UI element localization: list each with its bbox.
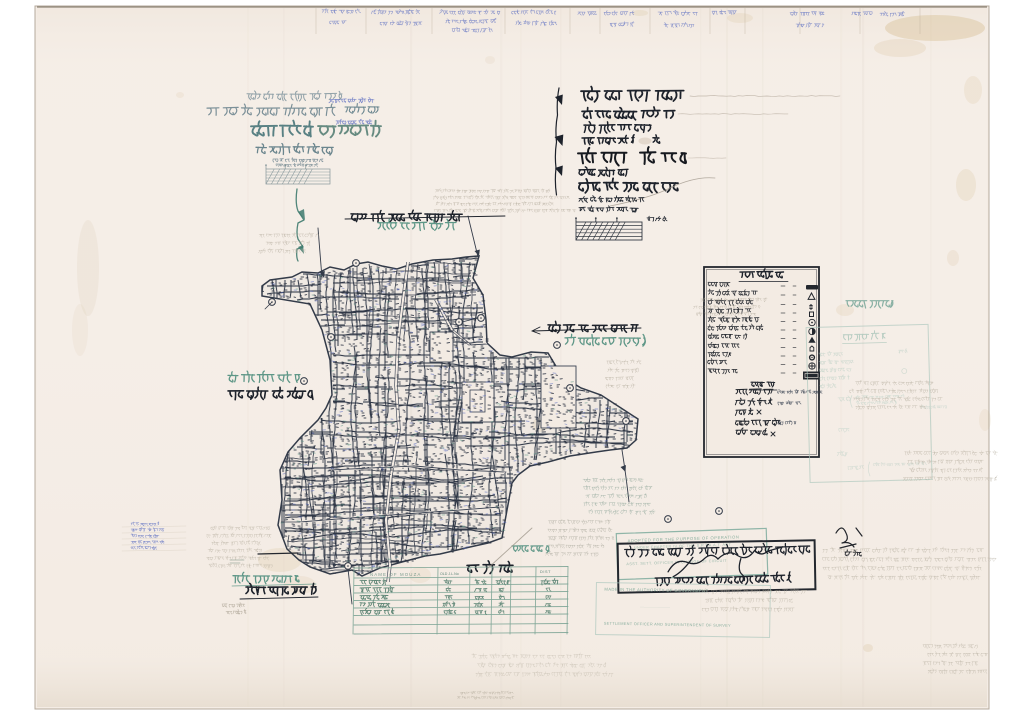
svg-text:DIST: DIST [540, 570, 551, 574]
svg-text:NAME OF MOUZA: NAME OF MOUZA [370, 572, 421, 577]
svg-text:..............................: .............................. [640, 604, 670, 609]
svg-text:OLD J.L.No: OLD J.L.No [440, 572, 459, 576]
